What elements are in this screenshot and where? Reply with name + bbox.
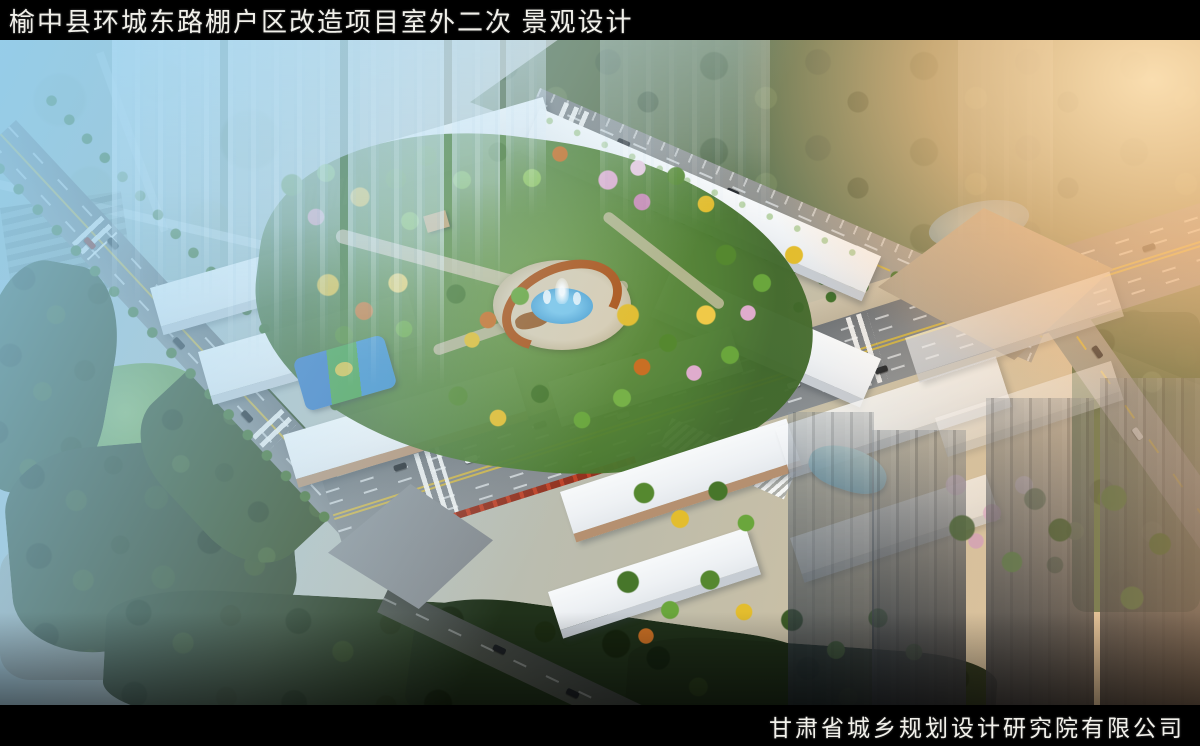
south-garden-trees-2 bbox=[598, 552, 773, 657]
foreground-trees-over-towers-1 bbox=[928, 492, 1100, 622]
foreground-trees-over-towers-2 bbox=[1082, 458, 1200, 648]
glass-tower-silhouette-faint bbox=[958, 40, 1053, 255]
credit-bar: 甘肃省城乡规划设计研究院有限公司 bbox=[0, 705, 1200, 746]
dark-tower-silhouette bbox=[788, 412, 874, 705]
garden-trees-south bbox=[430, 370, 655, 450]
glass-tower-silhouette bbox=[228, 40, 340, 375]
title-bar: 榆中县环城东路棚户区改造项目室外二次 景观设计 bbox=[0, 0, 1200, 40]
fountain-jet-small bbox=[543, 290, 551, 304]
car bbox=[1142, 243, 1156, 253]
car bbox=[393, 462, 407, 472]
glass-tower-silhouette bbox=[506, 40, 546, 225]
glass-tower-silhouette bbox=[348, 40, 444, 402]
garden-trees-east bbox=[700, 225, 820, 335]
project-title: 榆中县环城东路棚户区改造项目室外二次 景观设计 bbox=[0, 2, 634, 39]
car bbox=[1091, 345, 1103, 359]
presentation-board: 榆中县环城东路棚户区改造项目室外二次 景观设计 甘肃省城乡规划设计研究院有限公司 bbox=[0, 0, 1200, 746]
fountain-jet bbox=[555, 278, 569, 304]
aerial-rendering bbox=[0, 40, 1200, 705]
glass-tower-silhouette-faint bbox=[600, 40, 770, 235]
south-garden-trees-1 bbox=[618, 465, 768, 565]
glass-tower-silhouette bbox=[112, 40, 220, 315]
fountain-jet-small-2 bbox=[573, 292, 581, 305]
design-institute-name: 甘肃省城乡规划设计研究院有限公司 bbox=[769, 709, 1200, 743]
glass-tower-silhouette bbox=[452, 40, 500, 298]
